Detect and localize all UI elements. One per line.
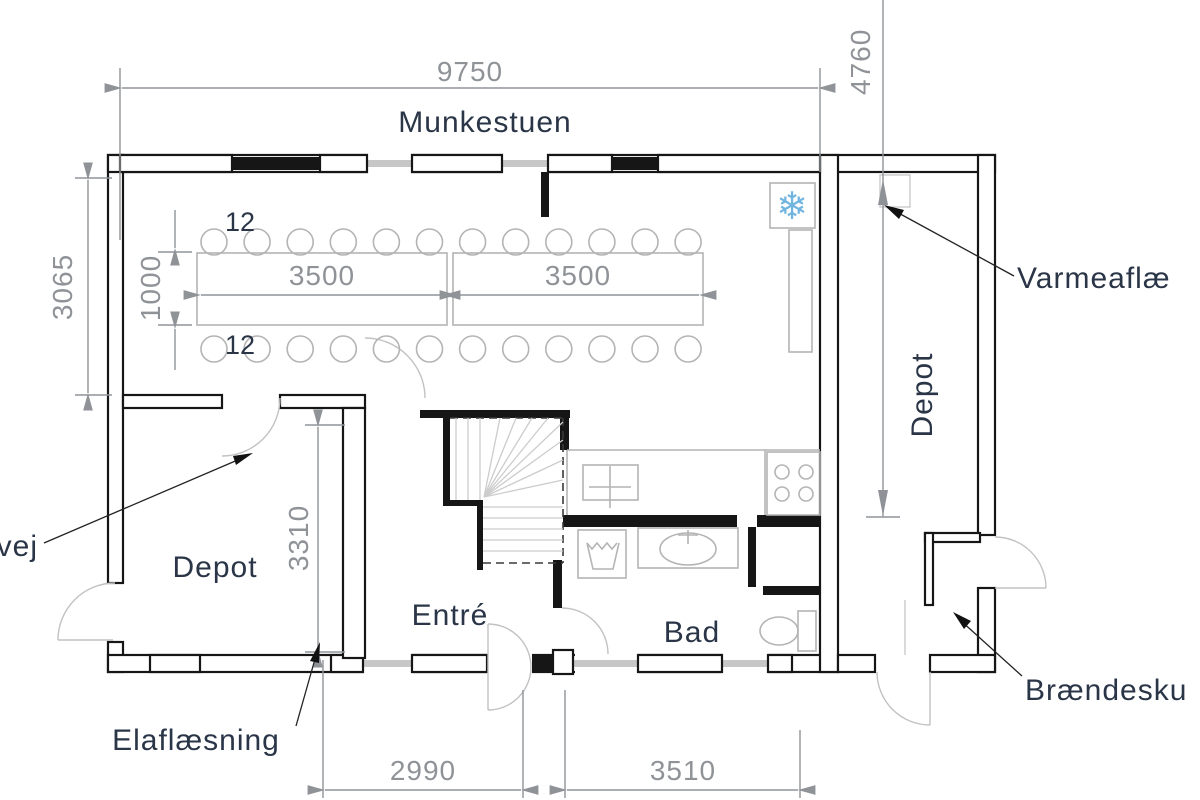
- dim-depot-left-height: 3310: [283, 425, 345, 652]
- svg-text:3310: 3310: [283, 505, 314, 571]
- svg-text:3510: 3510: [650, 755, 716, 786]
- chair: [330, 229, 356, 255]
- svg-text:4760: 4760: [845, 29, 876, 95]
- annotation-varmeaflaesning: Varmeaflæ: [884, 205, 1171, 295]
- chair: [546, 336, 572, 362]
- dim-bottom-left: 2990: [323, 660, 523, 798]
- chair: [330, 336, 356, 362]
- dim-right-depth: 4760: [845, 0, 900, 517]
- door-arc-braendeskur-right: [995, 537, 1046, 588]
- kitchen: [567, 450, 820, 515]
- chair: [373, 336, 399, 362]
- chair: [632, 229, 658, 255]
- room-label-munkestuen: Munkestuen: [398, 106, 571, 139]
- door-arc-munkestuen-depot: [222, 398, 280, 456]
- chair: [503, 336, 529, 362]
- wall-stub: [541, 172, 549, 217]
- chair: [675, 336, 701, 362]
- chair: [417, 229, 443, 255]
- svg-text:3500: 3500: [289, 260, 355, 291]
- window: [768, 655, 792, 672]
- chair: [589, 336, 615, 362]
- staircase: [450, 418, 563, 563]
- chair-count-top: 12: [225, 207, 255, 237]
- window: [412, 655, 487, 672]
- dim-table-2: 3500: [457, 260, 699, 295]
- interior-walls: [123, 395, 980, 658]
- chair: [373, 229, 399, 255]
- chair: [287, 229, 313, 255]
- snowflake-icon: ❄: [776, 186, 808, 228]
- chair-row-bottom: [201, 336, 701, 362]
- window: [638, 655, 722, 672]
- chair: [287, 336, 313, 362]
- window: [548, 155, 612, 172]
- chair: [632, 336, 658, 362]
- door-arc-bad: [562, 608, 608, 654]
- annotation-vej: vej: [0, 453, 253, 563]
- chair-row-top: [201, 229, 701, 255]
- room-label-depot-left: Depot: [172, 551, 257, 584]
- chair: [460, 229, 486, 255]
- svg-text:Varmeaflæ: Varmeaflæ: [1017, 262, 1171, 295]
- door-arc-braendeskur-bottom: [877, 672, 930, 725]
- room-label-bad: Bad: [664, 616, 720, 649]
- tall-cabinet: [789, 230, 812, 352]
- toilet: [760, 611, 816, 651]
- floor-plan-canvas: ❄ 9750: [0, 0, 1200, 800]
- chair: [589, 229, 615, 255]
- floor-plan-drawing: ❄ 9750: [0, 0, 1200, 800]
- wall-stub: [553, 650, 573, 674]
- wall-depot-entre: [343, 408, 365, 658]
- window: [412, 155, 502, 172]
- svg-text:Brændesku: Brændesku: [1025, 674, 1187, 707]
- room-label-entre: Entré: [412, 599, 489, 632]
- svg-text:vej: vej: [0, 530, 38, 563]
- svg-text:9750: 9750: [437, 56, 503, 87]
- chair: [675, 229, 701, 255]
- svg-text:3065: 3065: [47, 254, 78, 320]
- window: [320, 155, 367, 172]
- dim-table-1: 3500: [201, 260, 443, 295]
- svg-text:1000: 1000: [135, 255, 166, 321]
- chair: [546, 229, 572, 255]
- washbasin-unit: [578, 530, 626, 578]
- chair-count-bottom: 12: [225, 330, 255, 360]
- room-label-depot-right: Depot: [906, 352, 939, 437]
- chair: [201, 336, 227, 362]
- tables: [197, 253, 703, 325]
- door-arc-depot-exterior: [58, 583, 115, 640]
- window: [150, 655, 200, 672]
- dim-left-height: 3065: [47, 178, 112, 395]
- chair: [460, 336, 486, 362]
- window: [658, 155, 820, 172]
- chair: [201, 229, 227, 255]
- svg-text:3500: 3500: [545, 260, 611, 291]
- svg-text:2990: 2990: [390, 755, 456, 786]
- chair: [417, 336, 443, 362]
- chair: [503, 229, 529, 255]
- freezer: ❄: [770, 183, 815, 352]
- stove: [767, 452, 820, 515]
- dim-bottom-right: 3510: [565, 690, 800, 798]
- window: [120, 155, 232, 172]
- dim-table-width: 1000: [135, 210, 192, 370]
- svg-text:Elaflæsning: Elaflæsning: [112, 724, 280, 757]
